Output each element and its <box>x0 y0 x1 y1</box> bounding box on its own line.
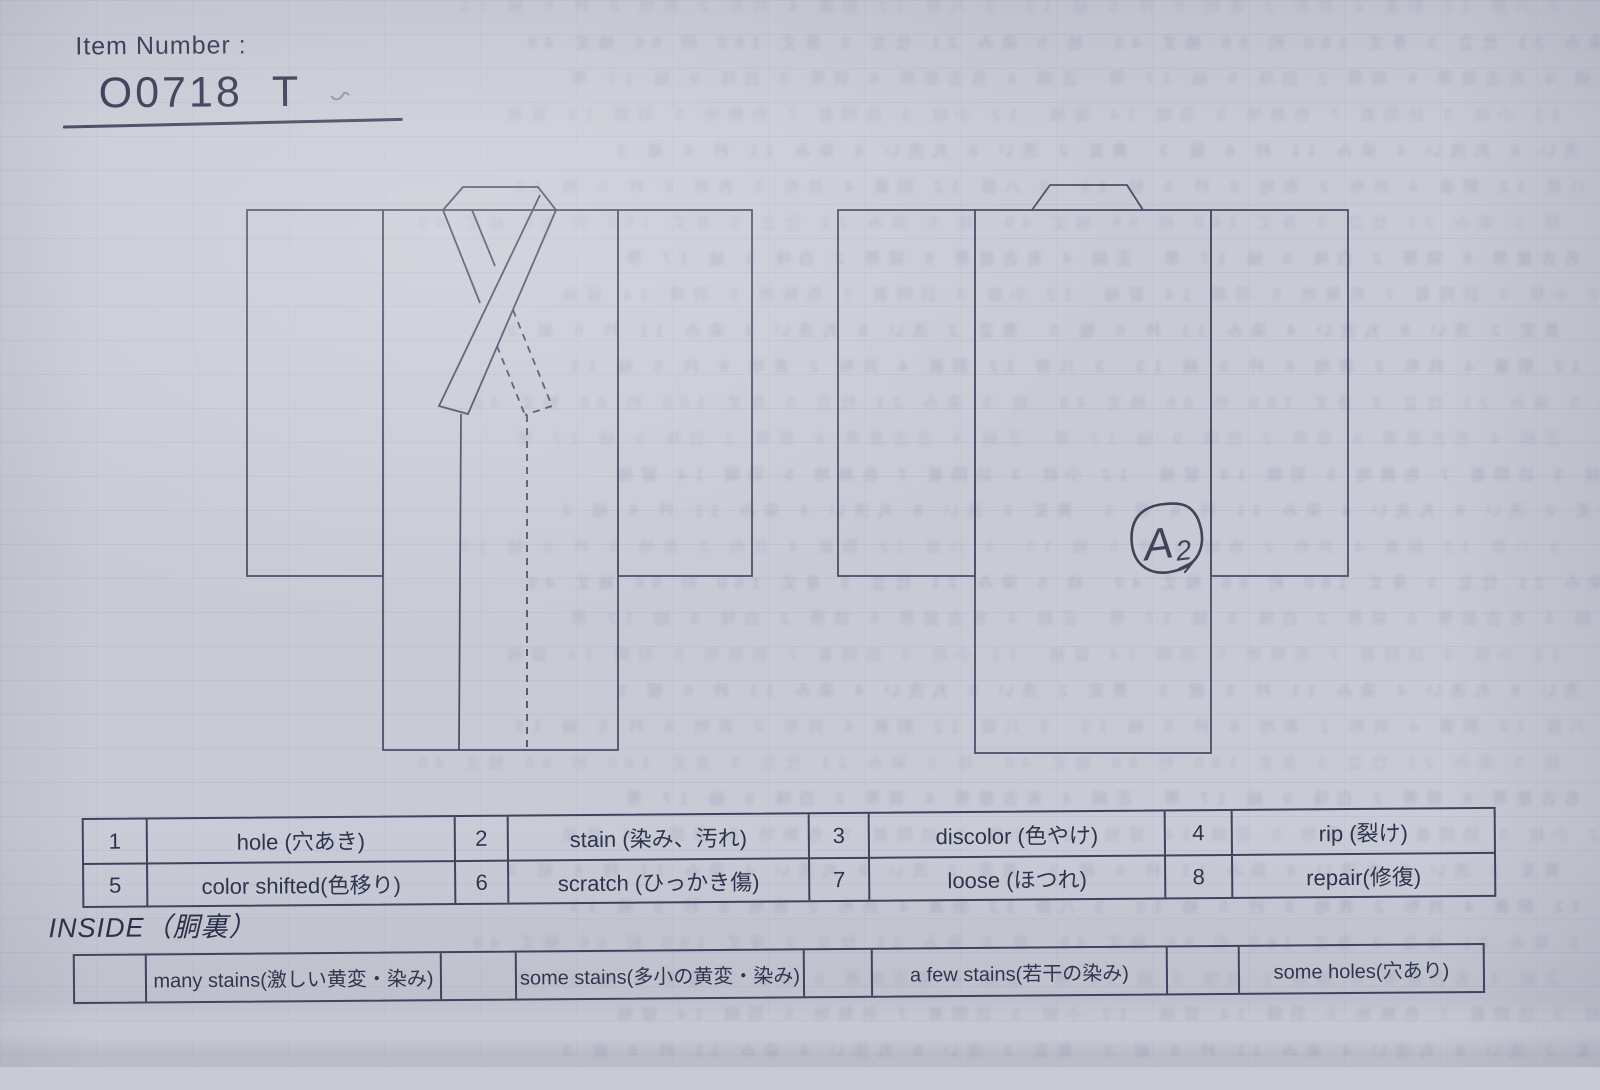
inside-checkbox-cell <box>1166 947 1238 994</box>
legend-code-cell: 2 <box>454 817 507 860</box>
inside-checkbox-cell <box>75 956 145 1003</box>
inside-checkbox-cell <box>803 950 871 997</box>
legend-code-cell: 1 <box>84 819 146 862</box>
inside-option-label: a few stains(若干の染み) <box>871 947 1166 995</box>
inside-option-label: many stains(激しい黄変・染み) <box>145 953 440 1001</box>
scanned-inspection-form: 3 八掛 12 胴裏 4 共布 2 表地 8 衿 5 袖 13 3 八掛 12 … <box>0 0 1600 1067</box>
legend-code-cell: 8 <box>1164 854 1231 898</box>
legend-label-cell: rip (裂け) <box>1231 809 1494 854</box>
legend-code-cell: 6 <box>454 860 507 903</box>
legend-label-cell: loose (ほつれ) <box>868 855 1164 900</box>
legend-code-cell: 4 <box>1164 811 1231 855</box>
defect-legend-table: 1 hole (穴あき) 2 stain (染み、汚れ) 3 discolor … <box>82 807 1497 908</box>
legend-code-cell: 5 <box>84 862 146 905</box>
inside-lining-table: many stains(激しい黄変・染み) some stains(多小の黄変・… <box>73 943 1485 1004</box>
inside-option-label: some holes(穴あり) <box>1238 945 1483 993</box>
inside-option-label: some stains(多小の黄変・染み) <box>515 950 803 998</box>
legend-label-cell: scratch (ひっかき傷) <box>507 857 808 902</box>
inside-section-heading: INSIDE（胴裏） <box>48 905 256 946</box>
legend-code-cell: 7 <box>808 857 868 900</box>
legend-label-cell: repair(修復) <box>1231 852 1494 897</box>
legend-code-cell: 3 <box>808 814 868 857</box>
legend-label-cell: color shifted(色移り) <box>146 860 454 905</box>
inside-checkbox-cell <box>440 953 515 1000</box>
legend-label-cell: discolor (色やけ) <box>868 812 1164 857</box>
legend-label-cell: stain (染み、汚れ) <box>507 814 808 859</box>
lower-printed-block: 1 hole (穴あき) 2 stain (染み、汚れ) 3 discolor … <box>0 0 1600 1068</box>
legend-label-cell: hole (穴あき) <box>146 817 454 862</box>
